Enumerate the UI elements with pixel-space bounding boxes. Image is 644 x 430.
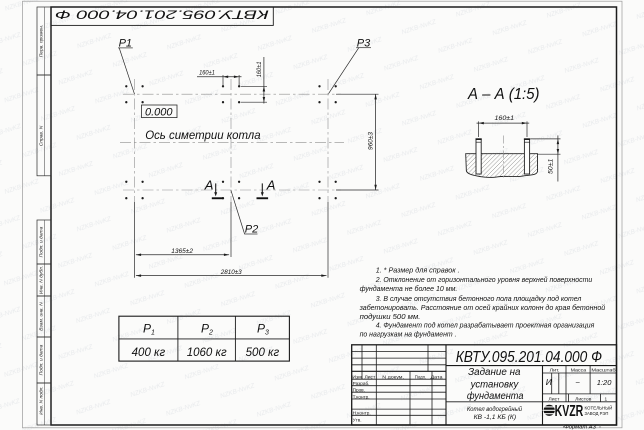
svg-text:Пров.: Пров. xyxy=(353,388,365,393)
svg-text:А: А xyxy=(204,177,214,192)
svg-text:по нагрузкам на фундамент .: по нагрузкам на фундамент . xyxy=(360,329,457,338)
svg-text:КВТУ.095.201.04.000 Ф: КВТУ.095.201.04.000 Ф xyxy=(456,349,602,366)
svg-text:ЗАВОД РЭП: ЗАВОД РЭП xyxy=(585,411,609,416)
svg-text:4. Фундамент под котел разраба: 4. Фундамент под котел разрабатывает про… xyxy=(376,321,595,330)
svg-text:Подп.: Подп. xyxy=(415,374,426,379)
svg-text:КВ -1,1 КБ (К): КВ -1,1 КБ (К) xyxy=(474,414,516,421)
svg-text:1:20: 1:20 xyxy=(597,378,612,387)
svg-text:1: 1 xyxy=(605,396,608,401)
svg-text:Котел водогрейный: Котел водогрейный xyxy=(467,406,523,413)
svg-text:Разраб.: Разраб. xyxy=(353,381,370,386)
svg-text:2. Отклонение от горизонтально: 2. Отклонение от горизонтального уровня … xyxy=(375,275,593,284)
svg-text:N докум.: N докум. xyxy=(382,374,404,379)
svg-text:Дата: Дата xyxy=(430,374,443,379)
svg-text:400 кг: 400 кг xyxy=(132,347,166,359)
svg-text:Масштаб: Масштаб xyxy=(591,368,616,373)
svg-text:1. * Размер для справок .: 1. * Размер для справок . xyxy=(376,265,460,274)
svg-text:установку: установку xyxy=(470,379,520,390)
svg-text:2810±3: 2810±3 xyxy=(220,269,242,276)
svg-text:забетонировать. Расстояние от: забетонировать. Расстояние от осей крайн… xyxy=(359,303,606,312)
svg-text:P: P xyxy=(201,322,209,336)
svg-text:160±1: 160±1 xyxy=(199,69,215,76)
svg-text:А: А xyxy=(266,177,276,192)
svg-text:Лист: Лист xyxy=(548,396,560,401)
svg-text:Взам. инв. N: Взам. инв. N xyxy=(39,302,45,331)
svg-text:КВТУ.095.201.04.000 Ф: КВТУ.095.201.04.000 Ф xyxy=(55,7,269,19)
svg-text:Инв. N подл.: Инв. N подл. xyxy=(39,386,45,415)
svg-text:–: – xyxy=(576,379,580,386)
svg-text:КОТЕЛЬНЫЙ: КОТЕЛЬНЫЙ xyxy=(585,404,613,411)
svg-text:160±1: 160±1 xyxy=(495,115,515,122)
svg-text:50±1: 50±1 xyxy=(548,158,555,174)
svg-text:Лит.: Лит. xyxy=(550,368,560,373)
svg-text:Подп. и дата: Подп. и дата xyxy=(39,344,45,375)
svg-text:Перв. примен.: Перв. примен. xyxy=(39,25,45,58)
svg-text:500 кг: 500 кг xyxy=(246,347,280,359)
svg-text:Т.контр.: Т.контр. xyxy=(353,394,370,399)
svg-text:1365±2: 1365±2 xyxy=(171,248,193,255)
svg-text:Ось симетрии котла: Ось симетрии котла xyxy=(145,130,260,142)
svg-text:1060 кг: 1060 кг xyxy=(187,347,227,359)
svg-text:960±3: 960±3 xyxy=(368,132,375,150)
svg-text:Утв.: Утв. xyxy=(353,417,362,422)
svg-text:3. В случае отсутствия бетонно: 3. В случае отсутствия бетонного пола пл… xyxy=(376,294,582,303)
svg-text:Подп. и дата: Подп. и дата xyxy=(39,226,45,257)
svg-text:Формат А3: Формат А3 xyxy=(564,425,596,430)
svg-text:0.000: 0.000 xyxy=(145,106,173,118)
svg-text:P: P xyxy=(257,322,265,336)
svg-text:2: 2 xyxy=(208,330,213,337)
svg-text:KVZR: KVZR xyxy=(555,403,584,420)
svg-text:Инв. N дубл.: Инв. N дубл. xyxy=(39,266,45,294)
svg-text:А – А (1:5): А – А (1:5) xyxy=(467,86,539,103)
svg-text:160±1: 160±1 xyxy=(256,61,263,77)
svg-text:Листов: Листов xyxy=(575,396,592,401)
svg-text:1: 1 xyxy=(151,330,155,337)
svg-text:P: P xyxy=(143,322,151,336)
svg-text:фундамента не более 10 мм.: фундамента не более 10 мм. xyxy=(360,284,458,293)
svg-text:Изм. Лист: Изм. Лист xyxy=(352,374,376,379)
svg-text:3: 3 xyxy=(265,330,269,337)
svg-text:Масса: Масса xyxy=(571,368,587,373)
svg-text:Справ. N: Справ. N xyxy=(39,125,45,146)
svg-text:И: И xyxy=(546,377,553,387)
svg-text:фундамента: фундамента xyxy=(467,390,524,402)
svg-text:Н.контр.: Н.контр. xyxy=(353,411,371,416)
svg-text:подушки 500 мм.: подушки 500 мм. xyxy=(360,312,421,321)
svg-text:Задание на: Задание на xyxy=(468,367,521,378)
